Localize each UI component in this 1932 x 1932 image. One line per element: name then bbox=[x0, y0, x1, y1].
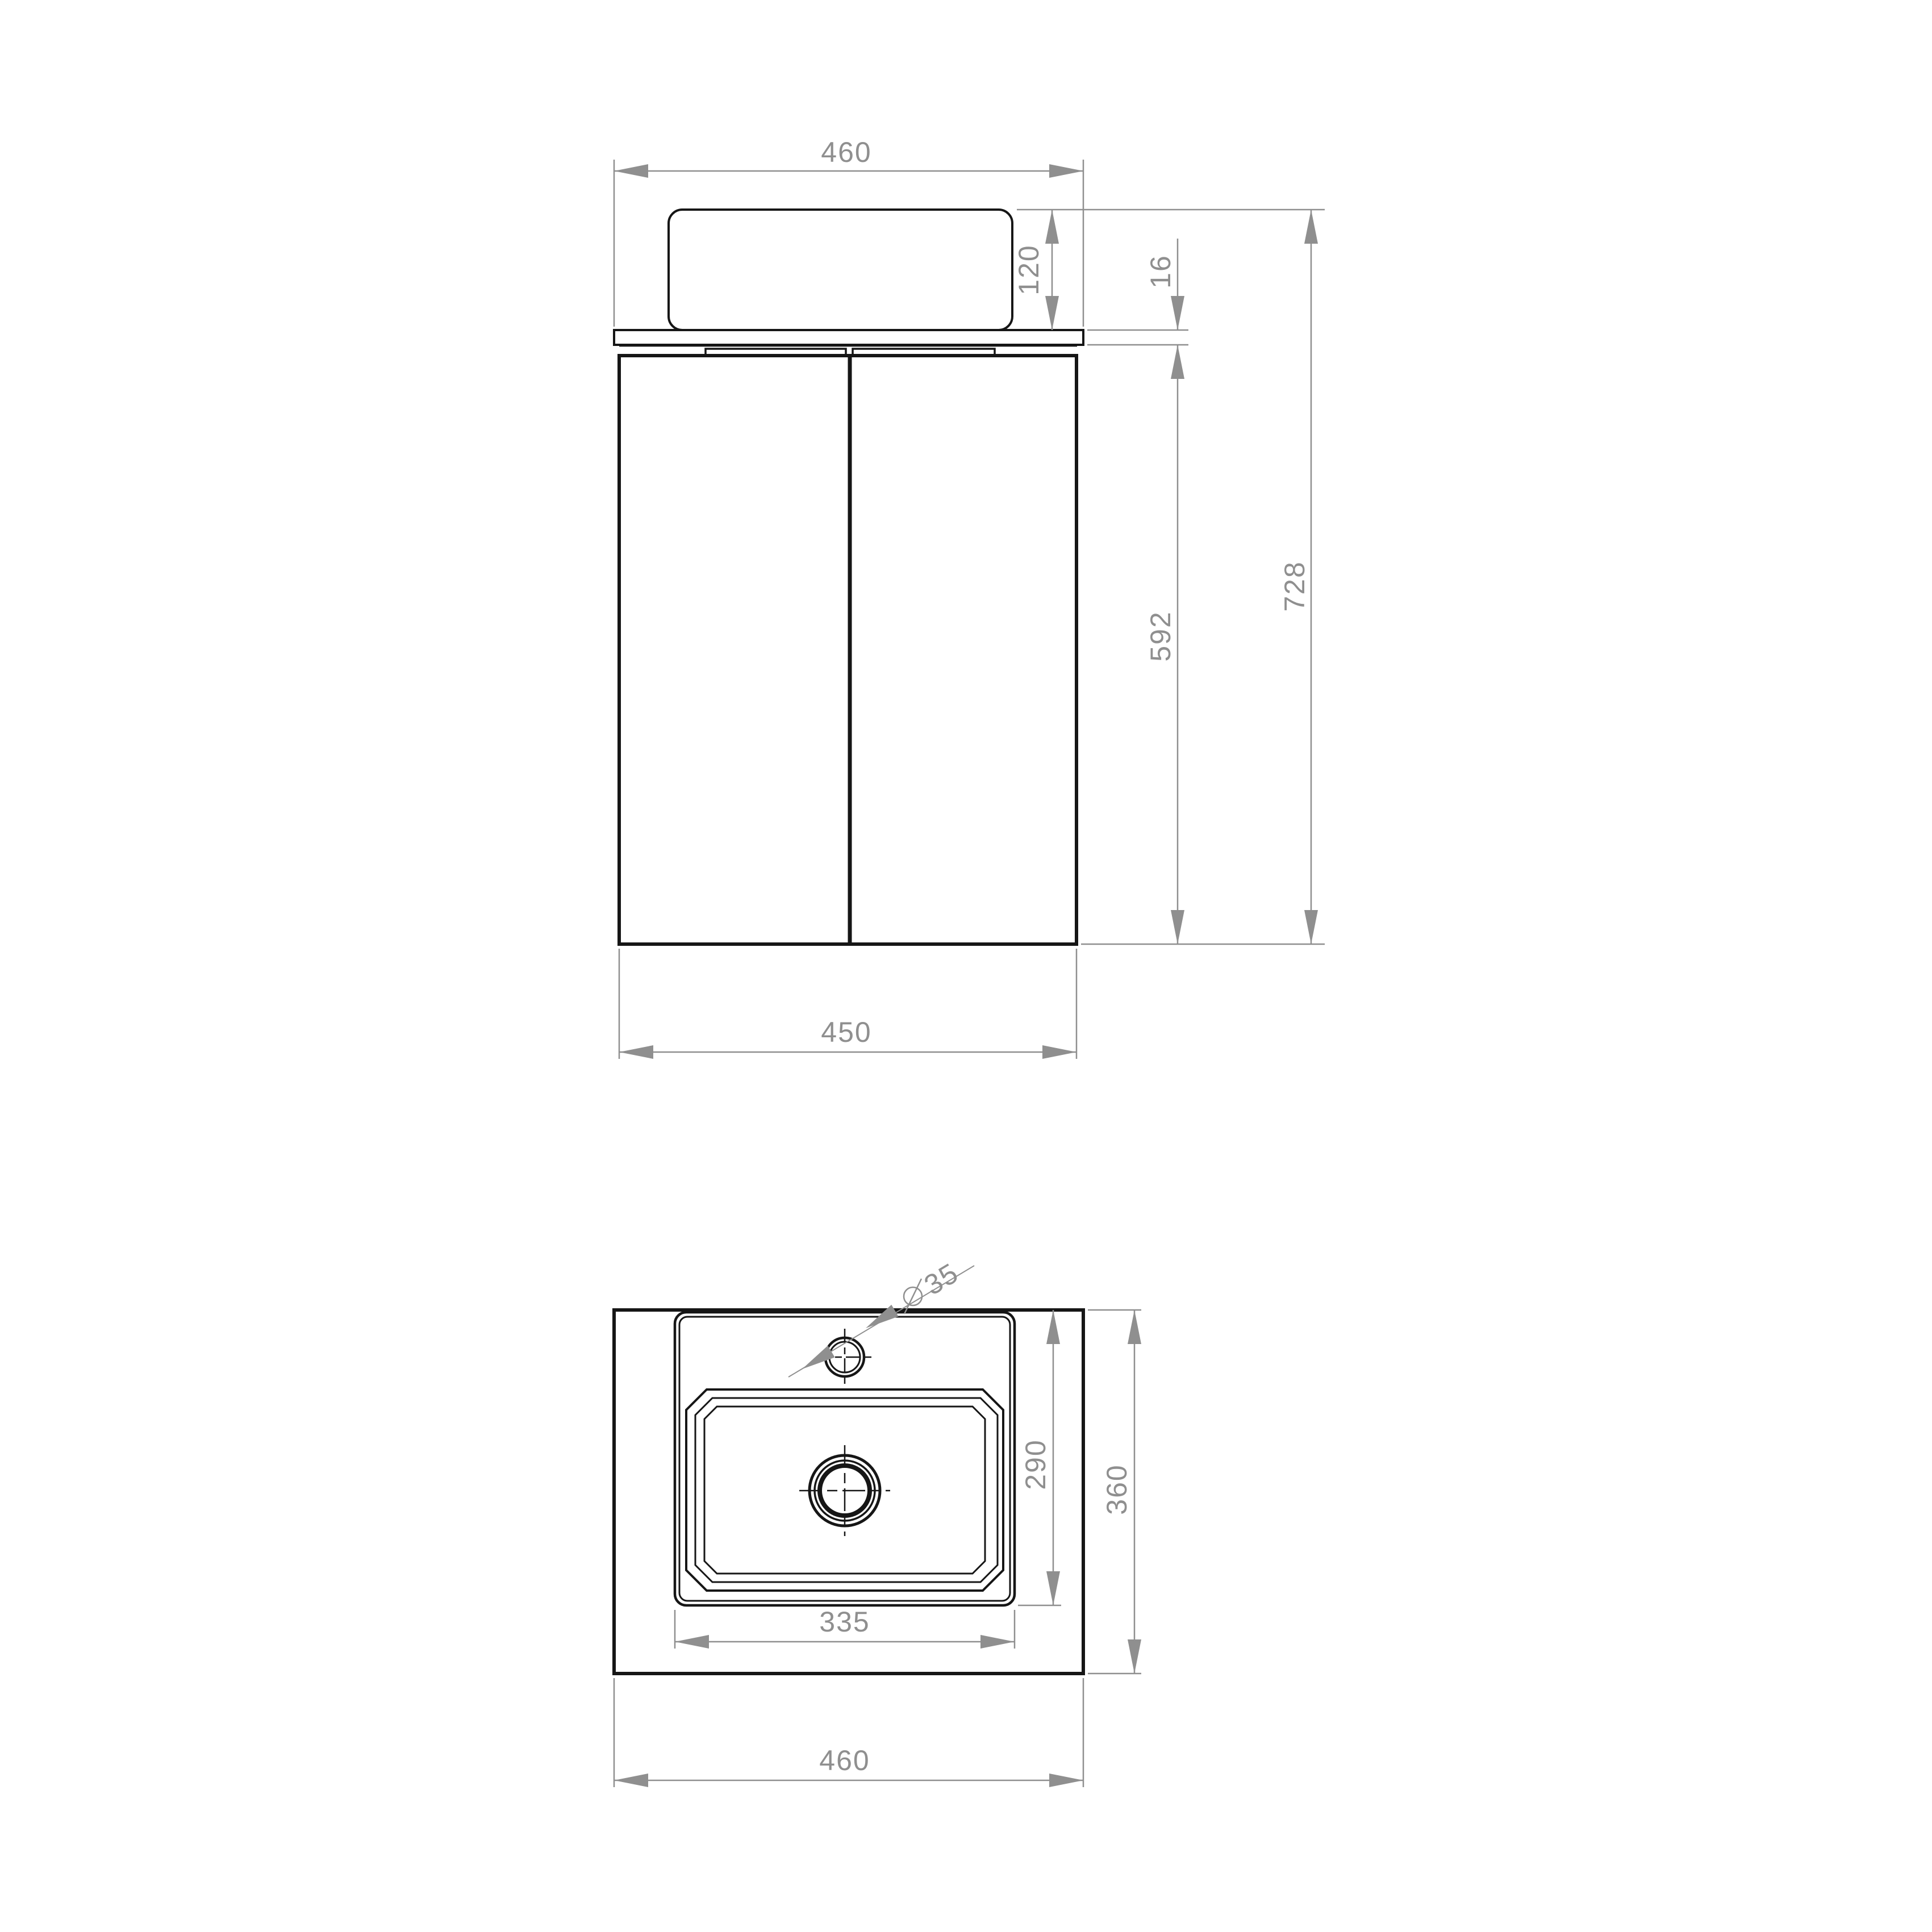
dim-label-cabinet-width: 450 bbox=[821, 1016, 871, 1048]
dim-label-plan-countertop-width: 460 bbox=[819, 1745, 870, 1776]
vanity-technical-drawing: 460 120 16 bbox=[0, 0, 1932, 1932]
dim-label-total-height: 728 bbox=[1279, 561, 1311, 611]
dim-label-cabinet-height: 592 bbox=[1145, 611, 1176, 661]
technical-drawing-page: 460 120 16 bbox=[0, 0, 1932, 1932]
drain-hole bbox=[799, 1445, 890, 1536]
dim-arrow-icon bbox=[1128, 1310, 1141, 1344]
dim-total-height: 728 bbox=[1081, 210, 1325, 944]
dim-countertop-depth: 360 bbox=[1088, 1310, 1141, 1674]
dim-arrow-icon bbox=[1045, 296, 1059, 330]
dim-arrow-icon bbox=[1128, 1639, 1141, 1674]
dim-arrow-icon bbox=[619, 1045, 653, 1059]
basin-front-outline bbox=[669, 210, 1012, 330]
dim-label-basin-depth: 290 bbox=[1020, 1439, 1051, 1489]
dim-label-basin-height: 120 bbox=[1013, 244, 1045, 295]
dim-arrow-icon bbox=[1046, 1310, 1060, 1344]
dim-countertop-thickness: 16 bbox=[1087, 239, 1188, 345]
dim-arrow-icon bbox=[1171, 345, 1184, 379]
dim-arrow-icon bbox=[1304, 210, 1318, 244]
dim-arrow-icon bbox=[1171, 910, 1184, 944]
dim-plan-countertop-width: 460 bbox=[614, 1678, 1083, 1787]
dim-cabinet-height: 592 bbox=[1145, 345, 1184, 944]
plan-view: 35 290 360 335 bbox=[614, 1257, 1141, 1787]
countertop-front-outline bbox=[614, 330, 1083, 345]
dim-label-countertop-width: 460 bbox=[821, 136, 871, 168]
dim-cabinet-width: 450 bbox=[619, 949, 1076, 1059]
front-elevation-view: 460 120 16 bbox=[614, 136, 1325, 1059]
dim-arrow-icon bbox=[1042, 1045, 1076, 1059]
dim-arrow-icon bbox=[614, 164, 648, 178]
dim-arrow-icon bbox=[675, 1635, 709, 1649]
dim-arrow-icon bbox=[980, 1635, 1015, 1649]
dim-arrow-icon bbox=[1046, 1571, 1060, 1605]
dim-label-countertop-thickness: 16 bbox=[1145, 254, 1176, 289]
dim-arrow-icon bbox=[1171, 296, 1184, 330]
dim-arrow-icon bbox=[1049, 164, 1083, 178]
dim-arrow-icon bbox=[1045, 210, 1059, 244]
dim-basin-width: 335 bbox=[675, 1606, 1015, 1649]
dim-label-countertop-depth: 360 bbox=[1101, 1464, 1133, 1514]
dim-arrow-icon bbox=[1049, 1774, 1083, 1787]
dim-arrow-icon bbox=[1304, 910, 1318, 944]
dim-basin-depth: 290 bbox=[1018, 1310, 1061, 1605]
dim-label-basin-width: 335 bbox=[819, 1606, 870, 1638]
dim-arrow-icon bbox=[614, 1774, 648, 1787]
